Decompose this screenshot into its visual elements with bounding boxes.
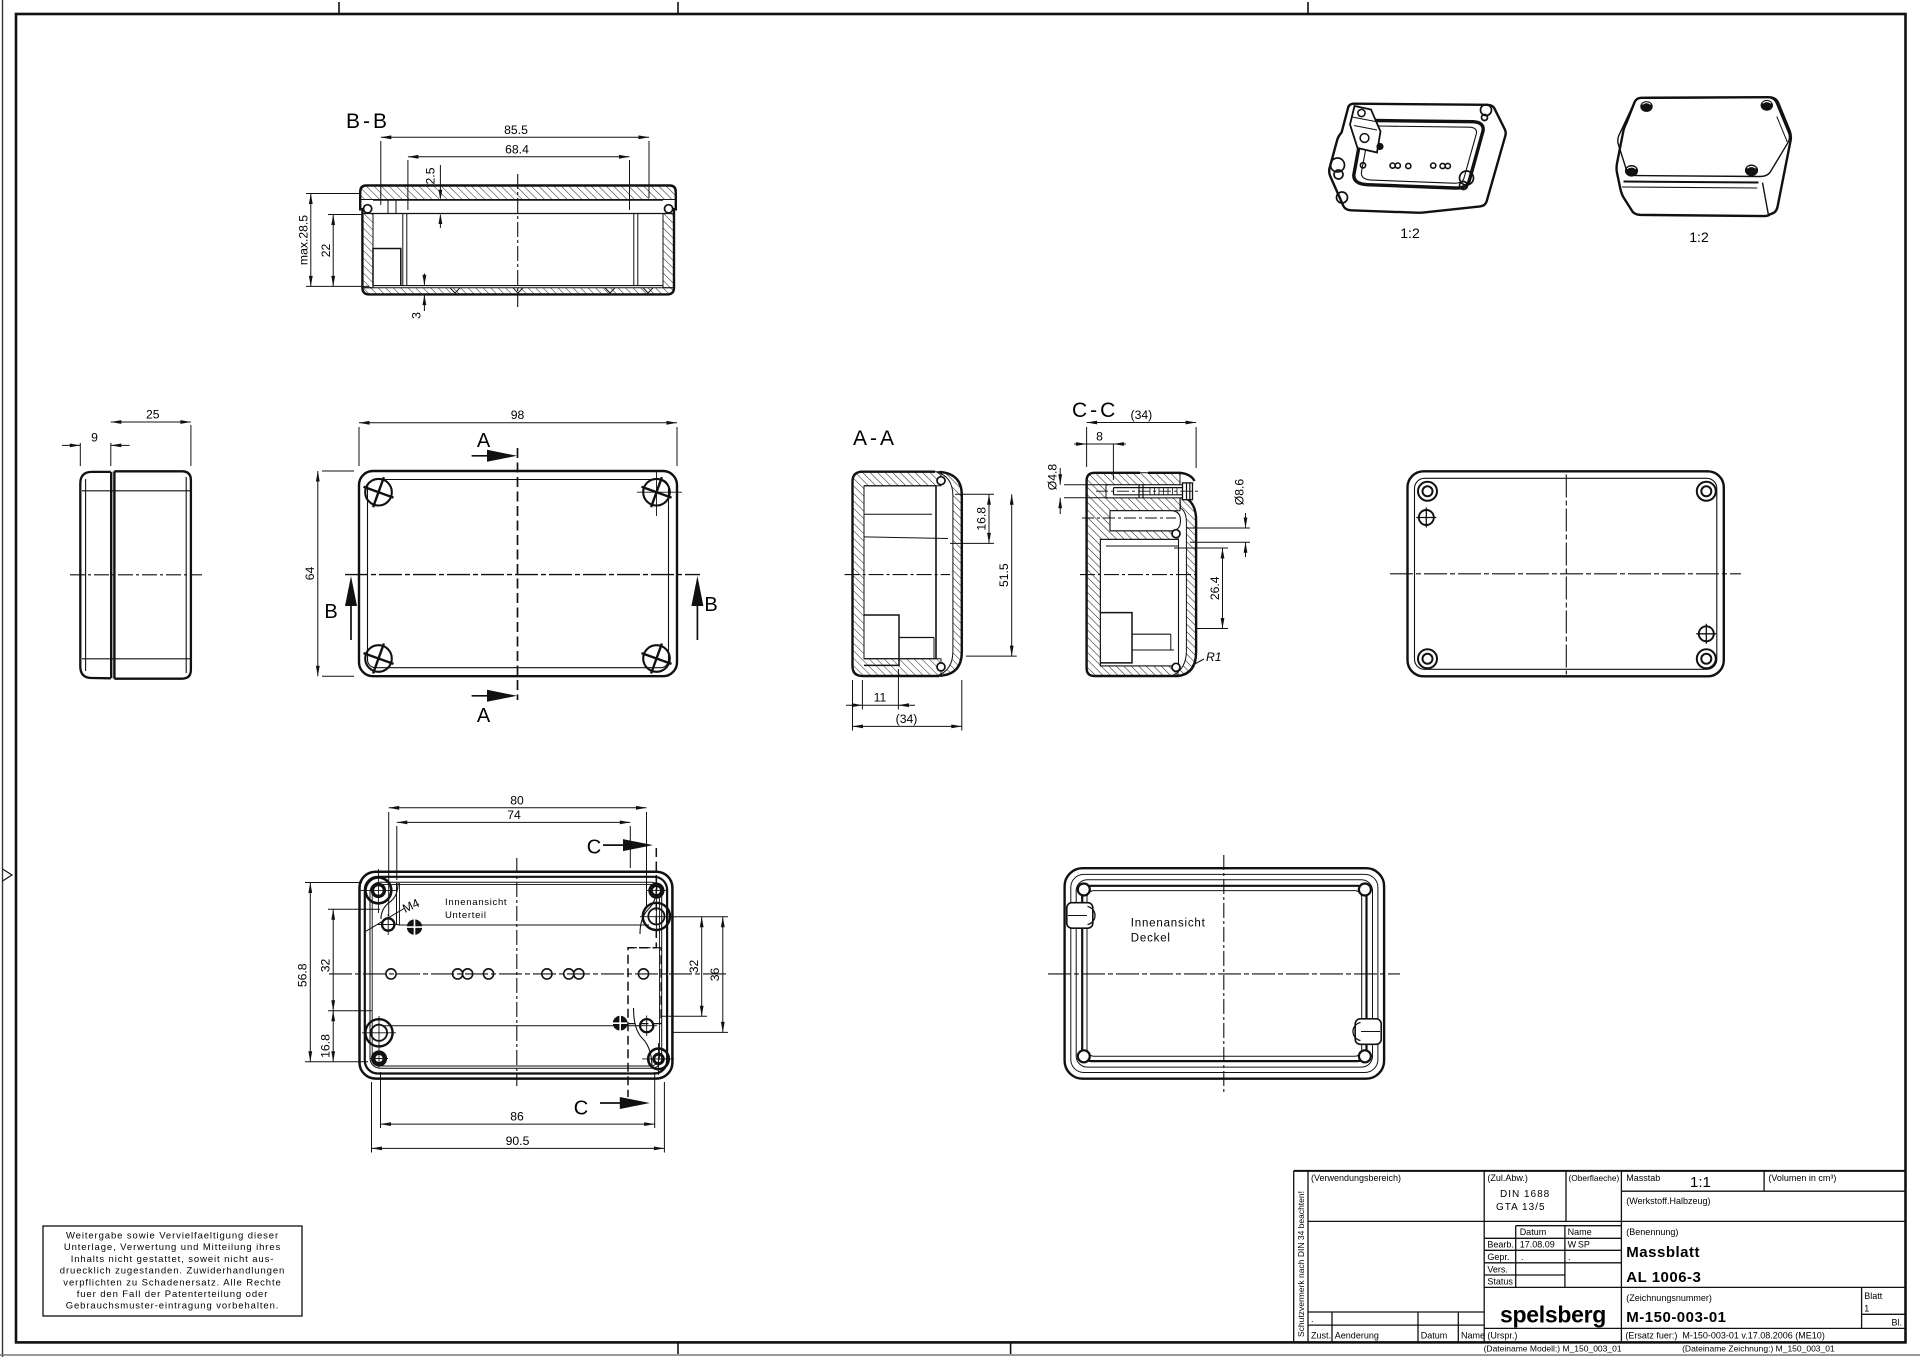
svg-text:74: 74 — [507, 808, 521, 822]
svg-text:Unterlage, Verwertung und Mitt: Unterlage, Verwertung und Mitteilung ihr… — [64, 1242, 281, 1253]
svg-text:Zust.: Zust. — [1311, 1331, 1331, 1341]
svg-text:Inhalts nicht gestattet, sowei: Inhalts nicht gestattet, soweit nicht au… — [71, 1254, 275, 1265]
svg-text:1:2: 1:2 — [1400, 225, 1420, 241]
svg-text:.: . — [1568, 1252, 1571, 1262]
svg-text:GTA 13/5: GTA 13/5 — [1496, 1202, 1546, 1213]
svg-text:32: 32 — [319, 959, 333, 973]
svg-text:C-C: C-C — [1072, 399, 1118, 422]
svg-text:Gebrauchsmuster-eintragung vor: Gebrauchsmuster-eintragung vorbehalten. — [66, 1301, 280, 1312]
svg-text:(Zul.Abw.): (Zul.Abw.) — [1487, 1173, 1528, 1183]
svg-text:26.4: 26.4 — [1208, 576, 1222, 600]
svg-text:Aenderung: Aenderung — [1335, 1331, 1379, 1341]
svg-text:druecklich zugestanden. Zuwide: druecklich zugestanden. Zuwiderhandlunge… — [60, 1266, 285, 1277]
svg-text:(Verwendungsbereich): (Verwendungsbereich) — [1311, 1173, 1401, 1183]
svg-text:(Dateiname Modell:) M_150_003_: (Dateiname Modell:) M_150_003_01 — [1484, 1344, 1622, 1354]
svg-text:36: 36 — [708, 968, 722, 982]
svg-text:90.5: 90.5 — [506, 1134, 530, 1148]
svg-text:Schutzvermerk nach DIN 34 beac: Schutzvermerk nach DIN 34 beachten! — [1296, 1191, 1306, 1337]
svg-text:1: 1 — [1864, 1304, 1869, 1314]
svg-text:9: 9 — [91, 431, 98, 445]
svg-text:(Zeichnungsnummer): (Zeichnungsnummer) — [1626, 1293, 1712, 1303]
svg-text:max.28.5: max.28.5 — [297, 215, 311, 265]
svg-text:.: . — [1311, 1314, 1314, 1324]
svg-text:64: 64 — [303, 567, 317, 581]
svg-text:B: B — [704, 594, 717, 616]
svg-text:Bl.: Bl. — [1891, 1318, 1902, 1328]
svg-text:W SP: W SP — [1568, 1240, 1590, 1250]
svg-text:68.4: 68.4 — [505, 143, 529, 157]
svg-text:2.5: 2.5 — [424, 167, 438, 184]
svg-text:A: A — [477, 705, 491, 727]
svg-text:3: 3 — [410, 312, 424, 319]
svg-text:16.8: 16.8 — [319, 1034, 333, 1058]
svg-text:Gepr.: Gepr. — [1487, 1252, 1509, 1262]
svg-text:Massblatt: Massblatt — [1626, 1244, 1700, 1261]
svg-text:11: 11 — [874, 691, 887, 705]
svg-text:A: A — [477, 430, 491, 452]
svg-text:Datum: Datum — [1520, 1227, 1547, 1237]
svg-text:Masstab: Masstab — [1626, 1173, 1660, 1183]
svg-text:B: B — [324, 601, 337, 623]
svg-text:Name: Name — [1568, 1227, 1592, 1237]
svg-text:(Volumen in cm³): (Volumen in cm³) — [1768, 1173, 1836, 1183]
svg-text:A-A: A-A — [853, 427, 897, 450]
svg-text:Ø4.8: Ø4.8 — [1046, 464, 1060, 491]
svg-text:Name: Name — [1461, 1331, 1485, 1341]
svg-text:Bearb.: Bearb. — [1487, 1240, 1514, 1250]
svg-text:fuer den Fall der Patenterteil: fuer den Fall der Patenterteilung oder — [77, 1289, 269, 1300]
svg-text:.: . — [1521, 1252, 1524, 1262]
svg-text:56.8: 56.8 — [296, 963, 310, 987]
svg-text:Unterteil: Unterteil — [445, 910, 487, 921]
svg-text:32: 32 — [687, 960, 701, 974]
svg-text:Weitergabe sowie Vervielfaelti: Weitergabe sowie Vervielfaeltigung diese… — [66, 1231, 279, 1242]
svg-text:86: 86 — [510, 1110, 524, 1124]
svg-text:M-150-003-01: M-150-003-01 — [1626, 1309, 1726, 1326]
svg-text:51.5: 51.5 — [997, 563, 1011, 587]
svg-text:DIN 1688: DIN 1688 — [1500, 1189, 1550, 1200]
svg-text:Datum: Datum — [1421, 1331, 1448, 1341]
svg-text:Ø8.6: Ø8.6 — [1233, 479, 1247, 506]
svg-text:8: 8 — [1096, 430, 1103, 444]
svg-text:16.8: 16.8 — [974, 507, 988, 531]
svg-text:(Dateiname Zeichnung:) M_150_0: (Dateiname Zeichnung:) M_150_003_01 — [1682, 1344, 1835, 1354]
svg-text:1:2: 1:2 — [1689, 229, 1709, 245]
svg-text:Blatt: Blatt — [1864, 1291, 1883, 1301]
svg-text:(Urspr.): (Urspr.) — [1487, 1331, 1517, 1341]
svg-text:17.08.09: 17.08.09 — [1520, 1240, 1555, 1250]
svg-text:Deckel: Deckel — [1131, 933, 1171, 945]
svg-text:spelsberg: spelsberg — [1500, 1302, 1606, 1328]
svg-text:verpflichten zu Schadenersatz.: verpflichten zu Schadenersatz. Alle Rech… — [63, 1277, 281, 1288]
svg-text:Status: Status — [1487, 1277, 1513, 1287]
svg-text:(Werkstoff.Halbzeug): (Werkstoff.Halbzeug) — [1626, 1196, 1710, 1206]
svg-text:R1: R1 — [1206, 650, 1222, 664]
svg-text:(Ersatz fuer:) M-150-003-01 v: (Ersatz fuer:) M-150-003-01 v.17.08.2006… — [1625, 1331, 1824, 1341]
svg-text:C: C — [587, 837, 601, 859]
svg-text:80: 80 — [510, 793, 524, 807]
svg-text:(34): (34) — [896, 712, 918, 726]
svg-text:1:1: 1:1 — [1690, 1174, 1711, 1191]
svg-text:AL 1006-3: AL 1006-3 — [1626, 1269, 1701, 1286]
svg-text:Vers.: Vers. — [1487, 1264, 1508, 1274]
svg-text:(Oberflaeche): (Oberflaeche) — [1569, 1173, 1620, 1183]
svg-text:98: 98 — [511, 408, 525, 422]
svg-text:(34): (34) — [1131, 408, 1153, 422]
svg-text:85.5: 85.5 — [504, 123, 528, 137]
svg-text:Innenansicht: Innenansicht — [445, 897, 507, 908]
svg-text:22: 22 — [319, 244, 333, 258]
svg-text:25: 25 — [146, 408, 160, 422]
svg-text:(Benennung): (Benennung) — [1626, 1227, 1678, 1237]
svg-text:Innenansicht: Innenansicht — [1131, 918, 1206, 930]
svg-text:C: C — [574, 1098, 588, 1120]
svg-text:B-B: B-B — [346, 110, 390, 133]
